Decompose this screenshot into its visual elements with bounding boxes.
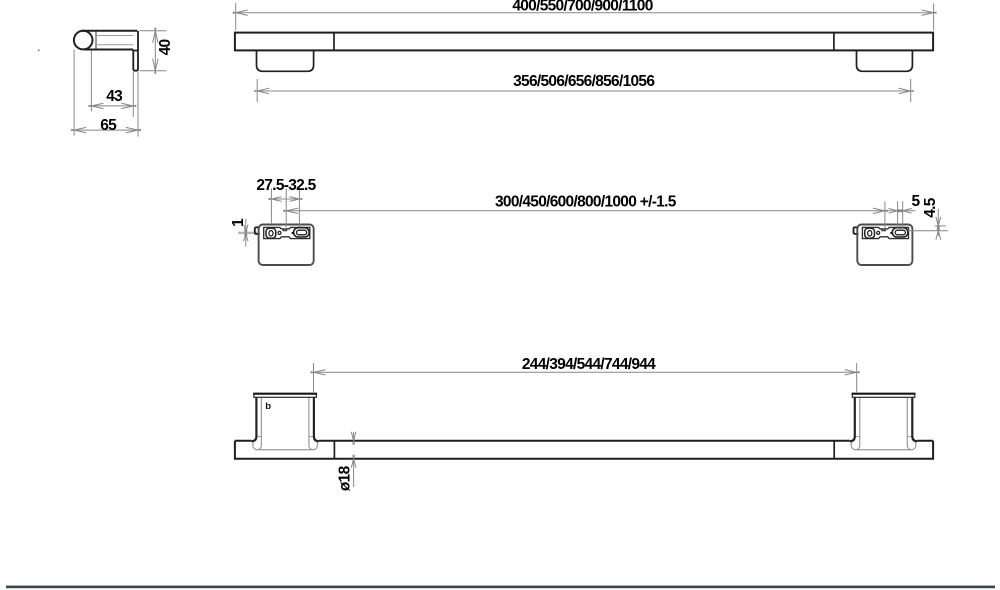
- svg-text:400/550/700/900/1100: 400/550/700/900/1100: [512, 0, 652, 15]
- svg-text:5: 5: [912, 193, 921, 210]
- svg-text:ø18: ø18: [336, 465, 353, 491]
- svg-text:1: 1: [230, 218, 247, 227]
- svg-text:b: b: [265, 401, 271, 412]
- svg-text:43: 43: [106, 88, 123, 105]
- svg-text:356/506/656/856/1056: 356/506/656/856/1056: [513, 73, 655, 90]
- svg-text:244/394/544/744/944: 244/394/544/744/944: [522, 356, 656, 373]
- svg-text:40: 40: [157, 40, 174, 56]
- svg-text:300/450/600/800/1000 +/-1.5: 300/450/600/800/1000 +/-1.5: [495, 194, 677, 211]
- svg-text:65: 65: [100, 117, 117, 134]
- svg-text:4.5: 4.5: [922, 197, 939, 218]
